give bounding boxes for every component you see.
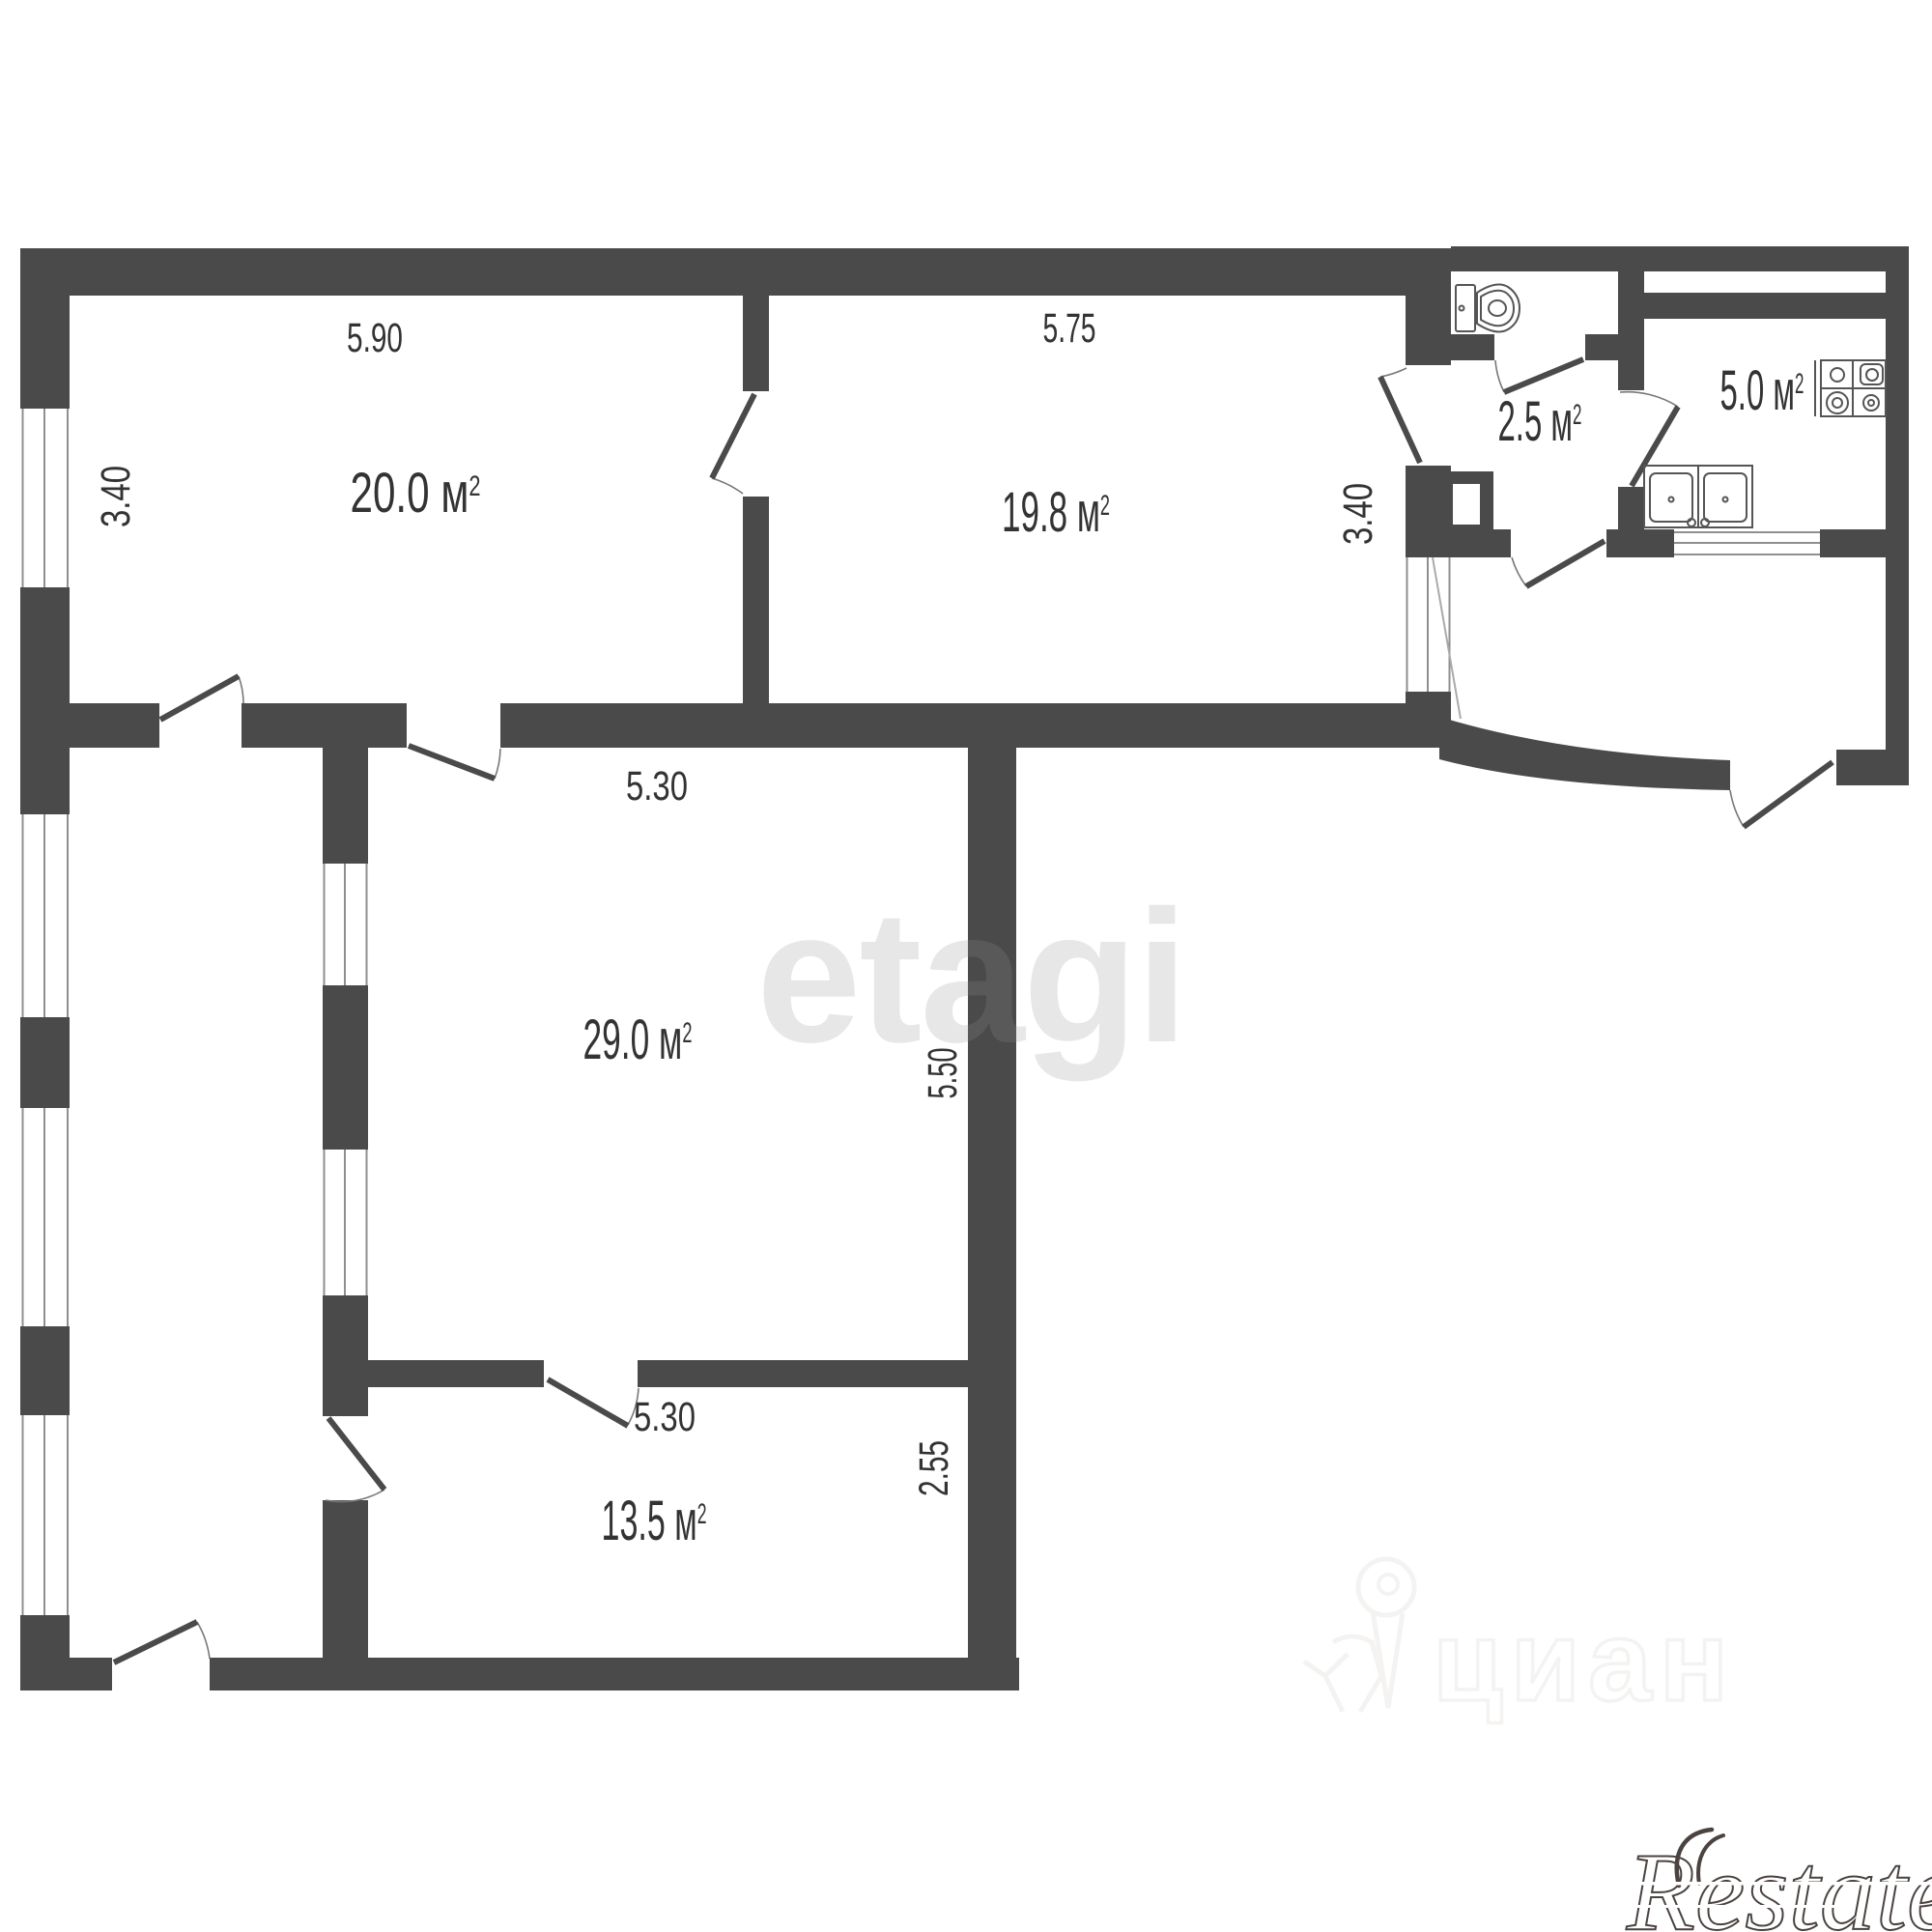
svg-text:etagi: etagi xyxy=(756,871,1186,1082)
svg-text:13.5 м2: 13.5 м2 xyxy=(602,1490,707,1552)
svg-text:20.0 м2: 20.0 м2 xyxy=(351,462,481,525)
svg-text:5.75: 5.75 xyxy=(1043,305,1096,352)
svg-text:3.40: 3.40 xyxy=(93,466,139,527)
svg-text:29.0 м2: 29.0 м2 xyxy=(583,1009,693,1071)
svg-text:5.50: 5.50 xyxy=(920,1048,966,1099)
svg-text:2.5 м2: 2.5 м2 xyxy=(1498,390,1582,453)
svg-text:5.0 м2: 5.0 м2 xyxy=(1720,359,1804,422)
svg-text:5.30: 5.30 xyxy=(626,763,688,810)
svg-text:циан: циан xyxy=(1433,1598,1736,1725)
svg-text:5.30: 5.30 xyxy=(634,1394,696,1440)
svg-text:Restate: Restate xyxy=(1626,1831,1932,1932)
svg-text:19.8 м2: 19.8 м2 xyxy=(1002,481,1110,544)
svg-text:2.55: 2.55 xyxy=(911,1440,957,1496)
svg-text:5.90: 5.90 xyxy=(347,315,403,361)
svg-text:3.40: 3.40 xyxy=(1335,483,1381,545)
